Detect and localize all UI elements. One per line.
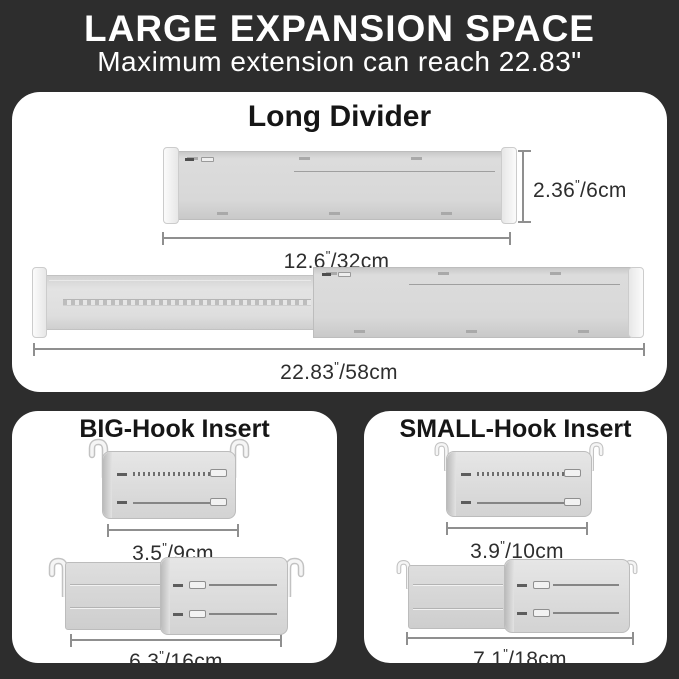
- divider-end-cap: [501, 147, 517, 224]
- big-hook-retracted-dimension-line: [107, 529, 239, 531]
- long-divider-title: Long Divider: [12, 100, 667, 134]
- page-subtitle: Maximum extension can reach 22.83": [0, 46, 679, 78]
- rail: [209, 613, 277, 615]
- insert-left-panel: [65, 562, 165, 630]
- small-hook-retracted-dimension-line: [446, 527, 588, 529]
- height-dimension-label: 2.36"/6cm: [533, 174, 627, 202]
- rivet-marks: [354, 330, 600, 333]
- rail: [209, 584, 277, 586]
- groove-line: [70, 607, 160, 609]
- big-hook-card: BIG-Hook Insert 3.5"/9cm: [12, 411, 337, 663]
- box-side-wall: [161, 558, 170, 634]
- divider-end-cap: [628, 267, 644, 338]
- divider-end-cap: [163, 147, 179, 224]
- rail-dash: [117, 501, 127, 504]
- height-dimension-line: [522, 150, 524, 223]
- small-hook-extended-dimension-line: [406, 637, 634, 639]
- rail-dash: [517, 584, 527, 587]
- toothed-rail: [477, 472, 575, 476]
- rail-dash: [461, 501, 471, 504]
- rivet-marks: [187, 157, 495, 160]
- box-side-wall: [447, 452, 456, 516]
- long-divider-retracted-illustration: [163, 147, 517, 224]
- box-side-wall: [103, 452, 112, 518]
- small-hook-retracted-illustration: [434, 439, 604, 521]
- big-hook-retracted-illustration: [88, 438, 250, 522]
- dim-inches: 7.1: [473, 648, 503, 671]
- ratchet-teeth: [63, 299, 311, 306]
- slider-tab: [533, 581, 550, 589]
- extended-width-dimension-label: 22.83"/58cm: [33, 356, 645, 384]
- seam-line: [409, 284, 620, 285]
- box-side-wall: [505, 560, 514, 632]
- dim-inches: 2.36: [533, 179, 575, 202]
- big-hook-extended-dimension-label: 6.3"/16cm: [70, 645, 282, 673]
- toothed-rail: [133, 472, 221, 476]
- dim-metric: /58cm: [339, 361, 398, 384]
- rail-dash: [517, 612, 527, 615]
- insert-box: [102, 451, 236, 519]
- lock-tab: [201, 157, 214, 162]
- rail: [133, 502, 221, 504]
- big-hook-extended-dimension-line: [70, 639, 282, 641]
- highlight-line: [49, 280, 311, 281]
- slider-tab: [533, 609, 550, 617]
- divider-body: [176, 151, 504, 220]
- small-hook-extended-illustration: [396, 555, 638, 637]
- divider-body: [313, 267, 631, 338]
- insert-right-panel: [160, 557, 288, 635]
- rail: [477, 502, 575, 504]
- page-title: LARGE EXPANSION SPACE: [0, 8, 679, 50]
- extension-bar: [44, 275, 316, 330]
- lock-dash: [185, 158, 194, 161]
- product-infographic: LARGE EXPANSION SPACE Maximum extension …: [0, 0, 679, 679]
- dim-inches: 6.3: [129, 650, 159, 673]
- insert-box: [446, 451, 592, 517]
- dim-metric: /6cm: [580, 179, 627, 202]
- groove-line: [70, 584, 160, 586]
- slider-tab: [210, 469, 227, 477]
- insert-right-panel: [504, 559, 630, 633]
- small-hook-extended-dimension-label: 7.1"/18cm: [406, 643, 634, 671]
- rail: [553, 612, 619, 614]
- divider-end-cap: [32, 267, 47, 338]
- long-divider-extended-illustration: [32, 267, 644, 338]
- rail-dash: [117, 473, 127, 476]
- rivet-marks: [217, 212, 473, 215]
- slider-tab: [189, 581, 206, 589]
- insert-left-panel: [408, 565, 508, 629]
- long-divider-card: Long Divider 2.36"/6cm 12.6"/32cm: [12, 92, 667, 392]
- rail: [553, 584, 619, 586]
- small-hook-card: SMALL-Hook Insert 3.9"/10c: [364, 411, 667, 663]
- slider-tab: [564, 469, 581, 477]
- width-dimension-line: [162, 237, 511, 239]
- rail-dash: [461, 473, 471, 476]
- extended-width-dimension-line: [33, 348, 645, 350]
- big-hook-extended-illustration: [48, 554, 305, 638]
- dim-inches: 22.83: [280, 361, 334, 384]
- lock-dash: [322, 273, 331, 276]
- dim-metric: /16cm: [164, 650, 223, 673]
- slider-tab: [564, 498, 581, 506]
- slider-tab: [210, 498, 227, 506]
- lock-tab: [338, 272, 351, 277]
- groove-line: [413, 608, 503, 610]
- slider-tab: [189, 610, 206, 618]
- dim-metric: /18cm: [508, 648, 567, 671]
- seam-line: [294, 171, 495, 172]
- groove-line: [413, 584, 503, 586]
- rail-dash: [173, 613, 183, 616]
- rivet-marks: [326, 272, 620, 275]
- rail-dash: [173, 584, 183, 587]
